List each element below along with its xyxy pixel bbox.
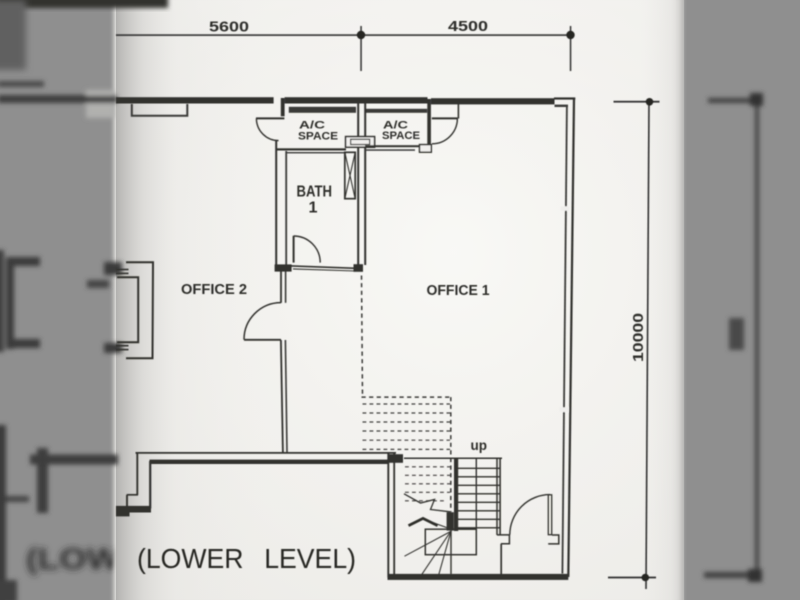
svg-text:(LOWER LEVEL): (LOWER LEVEL) bbox=[137, 543, 356, 574]
svg-text:SPACE: SPACE bbox=[298, 131, 338, 143]
svg-text:10000: 10000 bbox=[631, 313, 647, 362]
svg-text:4500: 4500 bbox=[448, 19, 488, 35]
svg-text:up: up bbox=[471, 437, 488, 453]
svg-text:5600: 5600 bbox=[209, 20, 249, 36]
svg-text:(LOW: (LOW bbox=[26, 543, 121, 576]
svg-text:SPACE: SPACE bbox=[382, 130, 420, 142]
svg-text:OFFICE 2: OFFICE 2 bbox=[181, 282, 247, 298]
svg-text:OFFICE 1: OFFICE 1 bbox=[427, 283, 490, 299]
svg-text:1: 1 bbox=[309, 200, 318, 217]
svg-text:BATH: BATH bbox=[297, 183, 333, 200]
